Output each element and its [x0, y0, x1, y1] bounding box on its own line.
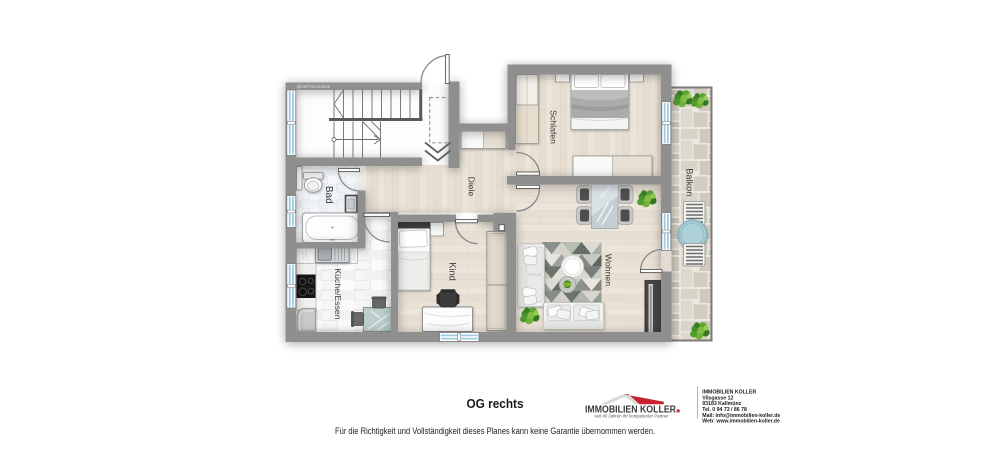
svg-text:OG rechts: OG rechts	[467, 397, 524, 411]
svg-text:Balkon: Balkon	[685, 168, 695, 196]
svg-text:seit 40 Jahren Ihr kompetenter: seit 40 Jahren Ihr kompetenter Partner	[595, 413, 670, 418]
svg-text:Schlafen: Schlafen	[549, 110, 559, 144]
svg-text:Kind: Kind	[448, 262, 458, 281]
svg-text:Für die Richtigkeit und Vollst: Für die Richtigkeit und Vollständigkeit …	[335, 426, 655, 437]
svg-text:@24/7Grundriss: @24/7Grundriss	[297, 84, 331, 89]
svg-text:Bad: Bad	[323, 186, 334, 204]
svg-text:Web: www.immobilien-koller.de: Web: www.immobilien-koller.de	[702, 419, 780, 425]
svg-text:Küche/Essen: Küche/Essen	[333, 268, 343, 319]
svg-text:Diele: Diele	[467, 177, 477, 197]
svg-text:Wohnen: Wohnen	[604, 254, 614, 286]
